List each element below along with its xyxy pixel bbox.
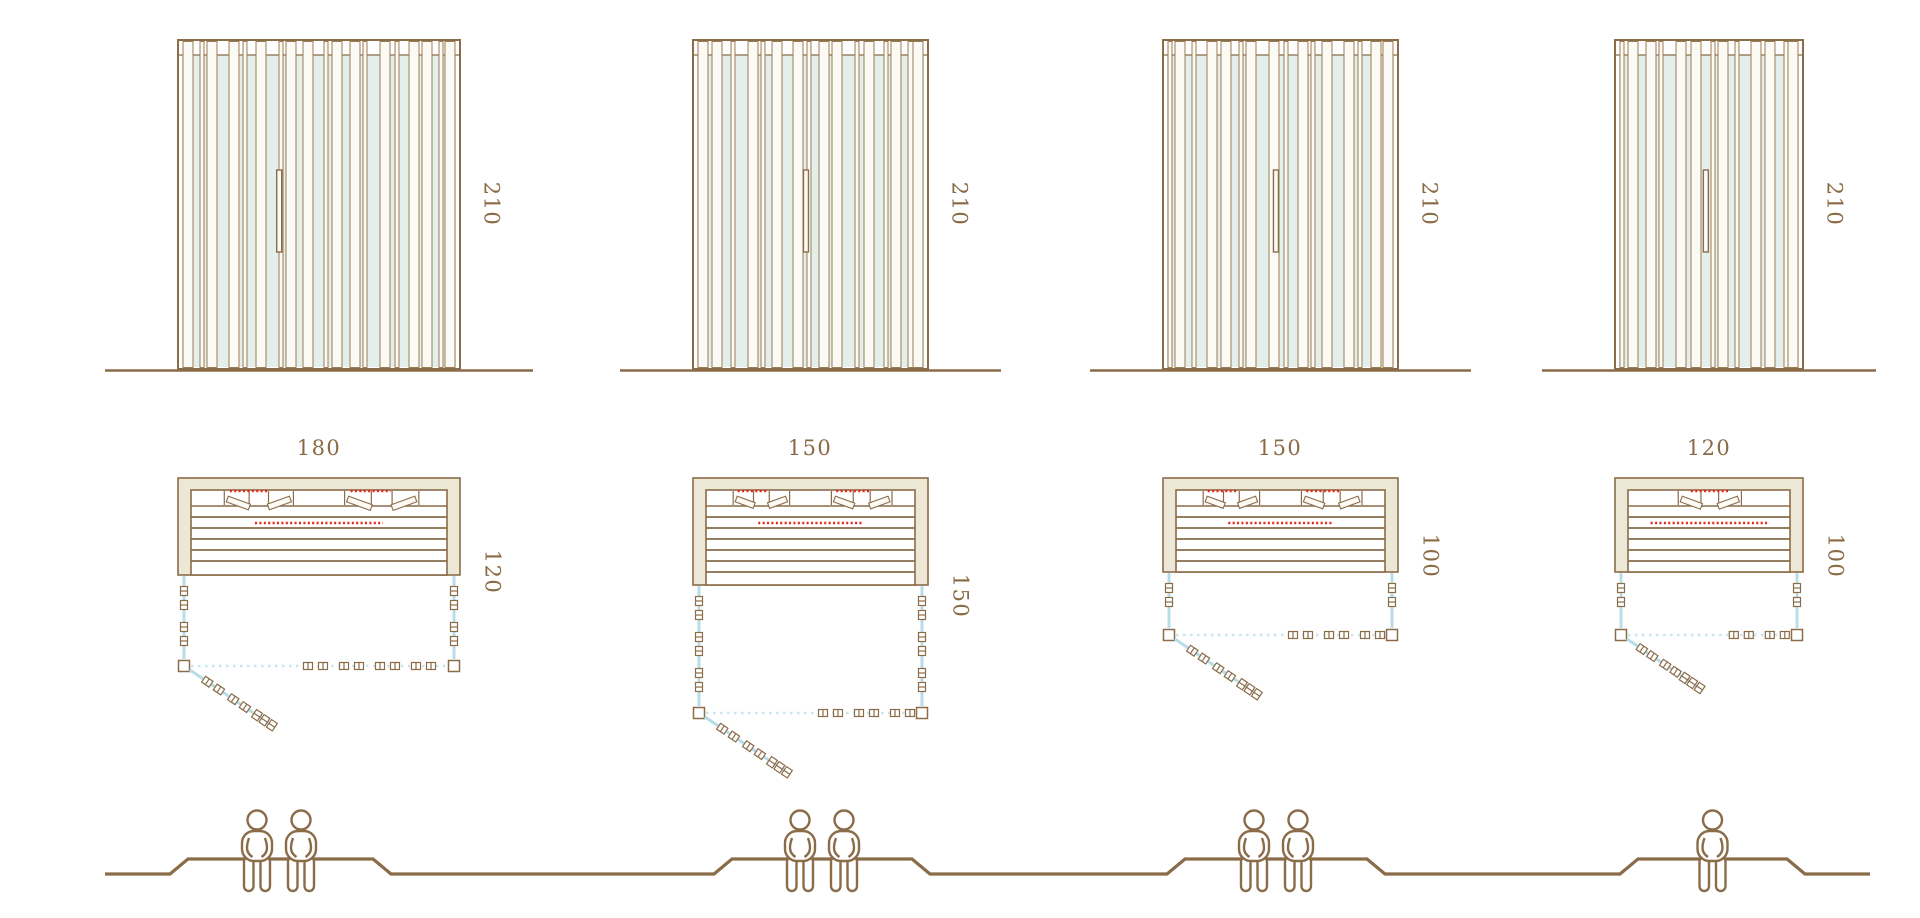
wood-slat xyxy=(855,42,859,368)
wood-slat xyxy=(1246,42,1256,368)
glass-batten-mark xyxy=(340,663,349,670)
glass-batten-mark xyxy=(451,587,458,596)
glass-batten-mark xyxy=(1361,632,1370,639)
glass-batten-mark xyxy=(391,663,400,670)
wood-slat xyxy=(1788,42,1798,368)
glass-batten-mark xyxy=(1729,632,1738,639)
wood-slat xyxy=(913,42,923,368)
glass-batten-mark xyxy=(451,637,458,646)
glass-batten-mark xyxy=(355,663,364,670)
door-handle xyxy=(803,170,808,252)
glass-batten-mark xyxy=(1304,632,1313,639)
corner-post xyxy=(1792,630,1803,641)
seated-person-icon xyxy=(1239,811,1269,892)
wood-slat xyxy=(1784,42,1788,368)
wood-slat xyxy=(350,42,360,368)
cabin-3-width-label: 150 xyxy=(1258,436,1303,460)
wood-slat xyxy=(439,42,443,368)
cabin-3-capacity-figures xyxy=(1239,811,1313,892)
wood-slat xyxy=(1646,42,1656,368)
glass-batten-mark xyxy=(1794,584,1801,593)
wood-slat xyxy=(256,42,266,368)
corner-post xyxy=(449,661,460,672)
generated-geometry xyxy=(105,40,1876,891)
glass-batten-mark xyxy=(1780,632,1789,639)
glass-batten-mark xyxy=(696,647,703,656)
glass-batten-mark xyxy=(1794,598,1801,607)
wood-slat xyxy=(183,42,193,368)
cabin-3-front-elevation xyxy=(1090,40,1471,371)
cabin-2-door-swing xyxy=(702,713,792,778)
wood-slat xyxy=(793,42,803,368)
glass-batten-mark xyxy=(1744,632,1753,639)
cabin-4-capacity-figures xyxy=(1698,811,1728,892)
wood-slat xyxy=(1711,42,1715,368)
door-hinge-post xyxy=(1616,630,1627,641)
glass-batten-mark xyxy=(376,663,385,670)
glass-batten-mark xyxy=(919,633,926,642)
wood-slat xyxy=(332,42,342,368)
wood-slat xyxy=(1691,42,1701,368)
glass-batten-mark xyxy=(834,710,843,717)
cabin-1-door-swing xyxy=(187,666,277,731)
glass-batten-mark xyxy=(919,669,926,678)
cabin-2-capacity-figures xyxy=(785,811,859,892)
wood-slat xyxy=(1168,42,1172,368)
glass-batten-mark xyxy=(919,597,926,606)
cabin-2-depth-label: 150 xyxy=(949,574,973,619)
cabin-4-width-label: 120 xyxy=(1687,436,1732,460)
wood-slat xyxy=(1207,42,1217,368)
cabin-4-depth-label: 100 xyxy=(1824,534,1848,579)
glass-batten-mark xyxy=(1618,584,1625,593)
glass-batten-mark xyxy=(1376,632,1385,639)
glass-batten-mark xyxy=(304,663,313,670)
wood-slat xyxy=(1676,42,1686,368)
glass-batten-mark xyxy=(696,683,703,692)
glass-batten-mark xyxy=(1166,598,1173,607)
glass-batten-mark xyxy=(1325,632,1334,639)
wood-slat xyxy=(1239,42,1243,368)
diagram-canvas: 210 210 210 210 180 150 150 120 120 150 … xyxy=(0,0,1920,918)
wood-slat xyxy=(761,42,765,368)
glass-batten-mark xyxy=(855,710,864,717)
glass-batten-mark xyxy=(1389,598,1396,607)
wood-slat xyxy=(1221,42,1231,368)
glass-batten-mark xyxy=(696,669,703,678)
glass-batten-mark xyxy=(906,710,915,717)
glass-batten-mark xyxy=(451,623,458,632)
wood-slat xyxy=(1358,42,1362,368)
door-handle xyxy=(1273,170,1278,252)
glass-batten-mark xyxy=(1166,584,1173,593)
wood-slat xyxy=(243,42,247,368)
seated-person-icon xyxy=(242,811,272,892)
glass-batten-mark xyxy=(696,611,703,620)
glass-batten-mark xyxy=(919,647,926,656)
cabin-1-capacity-figures xyxy=(242,811,316,892)
cabin-3-floor-plan xyxy=(1163,478,1398,700)
bench-area xyxy=(1628,490,1790,572)
wood-slat xyxy=(864,42,874,368)
glass-batten-mark xyxy=(319,663,328,670)
cabin-4-floor-plan xyxy=(1615,478,1803,694)
glass-batten-mark xyxy=(181,601,188,610)
glass-batten-mark xyxy=(870,710,879,717)
cabin-2-front-elevation xyxy=(620,40,1001,371)
wood-slat xyxy=(1659,42,1663,368)
door-hinge-post xyxy=(694,708,705,719)
cabin-1-front-elevation xyxy=(105,40,533,371)
wood-slat xyxy=(286,42,296,368)
wood-slat xyxy=(1620,42,1624,368)
cabin-3-door-swing xyxy=(1172,635,1262,700)
wood-slat xyxy=(1284,42,1288,368)
wood-slat xyxy=(772,42,782,368)
seated-person-icon xyxy=(1283,811,1313,892)
cabin-3-depth-label: 100 xyxy=(1419,534,1443,579)
wood-slat xyxy=(324,42,328,368)
sauna-size-comparison-diagram: 210 210 210 210 180 150 150 120 120 150 … xyxy=(0,0,1920,918)
glass-batten-mark xyxy=(427,663,436,670)
wood-slat xyxy=(1344,42,1354,368)
cabin-1-depth-label: 120 xyxy=(481,550,505,595)
wood-slat xyxy=(207,42,217,368)
glass-batten-mark xyxy=(1389,584,1396,593)
wood-slat xyxy=(303,42,313,368)
wood-slat xyxy=(1175,42,1185,368)
wood-slat xyxy=(1383,42,1393,368)
wood-slat xyxy=(832,42,842,368)
glass-batten-mark xyxy=(891,710,900,717)
glass-batten-mark xyxy=(919,611,926,620)
door-handle xyxy=(277,170,282,252)
wood-slat xyxy=(445,42,455,368)
wood-slat xyxy=(1735,42,1739,368)
wood-slat xyxy=(712,42,722,368)
corner-post xyxy=(917,708,928,719)
seated-person-icon xyxy=(286,811,316,892)
wood-slat xyxy=(731,42,735,368)
wood-slat xyxy=(1322,42,1332,368)
wood-slat xyxy=(891,42,901,368)
wood-slat xyxy=(422,42,432,368)
glass-batten-mark xyxy=(1289,632,1298,639)
glass-batten-mark xyxy=(181,623,188,632)
glass-batten-mark xyxy=(181,587,188,596)
wood-slat xyxy=(819,42,829,368)
glass-batten-mark xyxy=(1618,598,1625,607)
glass-batten-mark xyxy=(451,601,458,610)
wood-slat xyxy=(380,42,390,368)
wood-slat xyxy=(229,42,239,368)
glass-batten-mark xyxy=(1340,632,1349,639)
seated-person-icon xyxy=(1698,811,1728,892)
wood-slat xyxy=(1371,42,1381,368)
wood-slat xyxy=(884,42,888,368)
glass-batten-mark xyxy=(1765,632,1774,639)
wood-slat xyxy=(395,42,399,368)
cabin-4-height-label: 210 xyxy=(1823,182,1847,227)
glass-batten-mark xyxy=(181,637,188,646)
bench-profile-line xyxy=(105,859,1870,874)
wood-slat xyxy=(1311,42,1315,368)
corner-post xyxy=(1387,630,1398,641)
glass-batten-mark xyxy=(412,663,421,670)
cabin-2-height-label: 210 xyxy=(948,182,972,227)
wood-slat xyxy=(409,42,419,368)
wood-slat xyxy=(1298,42,1308,368)
wood-slat xyxy=(1718,42,1728,368)
cabin-1-width-label: 180 xyxy=(297,436,342,460)
wood-slat xyxy=(1765,42,1775,368)
wood-slat xyxy=(200,42,204,368)
seated-person-icon xyxy=(785,811,815,892)
door-hinge-post xyxy=(1164,630,1175,641)
door-hinge-post xyxy=(179,661,190,672)
cabin-2-width-label: 150 xyxy=(788,436,833,460)
wood-slat xyxy=(363,42,367,368)
cabin-1-height-label: 210 xyxy=(480,182,504,227)
wood-slat xyxy=(1628,42,1638,368)
glass-batten-mark xyxy=(696,633,703,642)
wood-slat xyxy=(1192,42,1196,368)
cabin-3-height-label: 210 xyxy=(1418,182,1442,227)
door-handle xyxy=(1703,170,1708,252)
wood-slat xyxy=(698,42,708,368)
cabin-2-floor-plan xyxy=(693,478,928,778)
glass-batten-mark xyxy=(919,683,926,692)
wood-slat xyxy=(748,42,758,368)
seated-person-icon xyxy=(829,811,859,892)
glass-batten-mark xyxy=(696,597,703,606)
glass-batten-mark xyxy=(819,710,828,717)
wood-slat xyxy=(1751,42,1761,368)
cabin-1-floor-plan xyxy=(178,478,460,731)
cabin-4-door-swing xyxy=(1624,635,1705,694)
